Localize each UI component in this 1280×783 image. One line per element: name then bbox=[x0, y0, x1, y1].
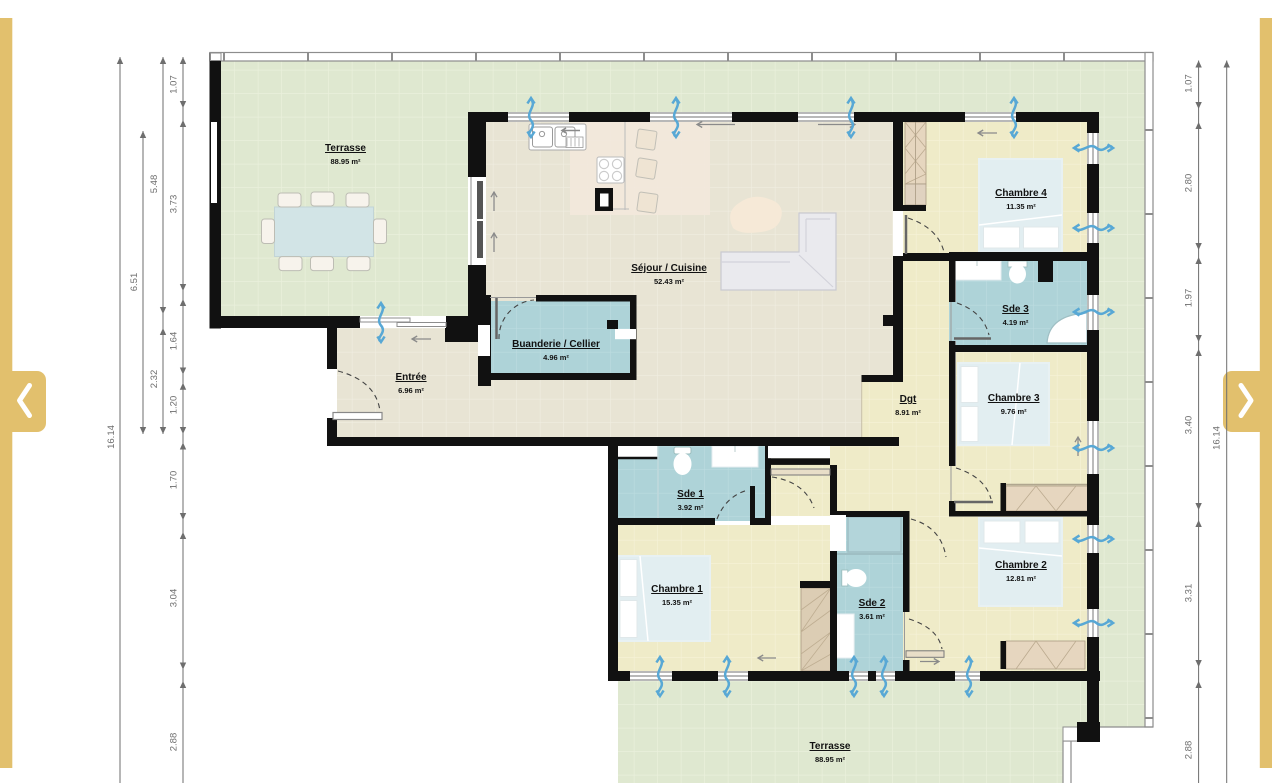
svg-text:6.96 m²: 6.96 m² bbox=[398, 386, 424, 395]
svg-text:Chambre 4: Chambre 4 bbox=[995, 188, 1047, 199]
svg-text:Sde 2: Sde 2 bbox=[859, 598, 886, 609]
svg-text:4.96 m²: 4.96 m² bbox=[543, 353, 569, 362]
svg-text:Chambre 3: Chambre 3 bbox=[988, 393, 1040, 404]
svg-text:16.14: 16.14 bbox=[1212, 426, 1223, 450]
svg-text:88.95 m²: 88.95 m² bbox=[330, 157, 361, 166]
svg-text:Terrasse: Terrasse bbox=[325, 143, 366, 154]
svg-text:Séjour / Cuisine: Séjour / Cuisine bbox=[631, 263, 707, 274]
svg-text:3.40: 3.40 bbox=[1184, 416, 1195, 435]
svg-text:1.07: 1.07 bbox=[1184, 74, 1195, 93]
svg-text:Chambre 2: Chambre 2 bbox=[995, 560, 1047, 571]
svg-text:15.35 m²: 15.35 m² bbox=[662, 598, 693, 607]
svg-text:2.88: 2.88 bbox=[169, 733, 180, 752]
svg-text:12.81 m²: 12.81 m² bbox=[1006, 574, 1037, 583]
svg-text:Dgt: Dgt bbox=[900, 394, 917, 405]
svg-text:2.88: 2.88 bbox=[1184, 741, 1195, 760]
svg-text:Chambre 1: Chambre 1 bbox=[651, 584, 703, 595]
svg-text:Sde 1: Sde 1 bbox=[677, 489, 704, 500]
svg-text:3.92 m²: 3.92 m² bbox=[678, 503, 704, 512]
svg-text:11.35 m²: 11.35 m² bbox=[1006, 202, 1036, 211]
svg-text:16.14: 16.14 bbox=[106, 425, 117, 449]
svg-text:1.97: 1.97 bbox=[1184, 289, 1195, 308]
svg-text:1.64: 1.64 bbox=[169, 332, 180, 351]
svg-text:3.73: 3.73 bbox=[169, 195, 180, 214]
svg-text:Buanderie / Cellier: Buanderie / Cellier bbox=[512, 339, 600, 350]
svg-text:4.19 m²: 4.19 m² bbox=[1003, 318, 1029, 327]
svg-text:3.61 m²: 3.61 m² bbox=[859, 612, 885, 621]
svg-text:Sde 3: Sde 3 bbox=[1002, 304, 1029, 315]
svg-text:88.95 m²: 88.95 m² bbox=[815, 755, 846, 764]
svg-text:2.80: 2.80 bbox=[1184, 174, 1195, 193]
svg-text:Entrée: Entrée bbox=[395, 372, 427, 383]
svg-text:3.04: 3.04 bbox=[169, 589, 180, 608]
svg-text:52.43 m²: 52.43 m² bbox=[654, 277, 685, 286]
svg-text:6.51: 6.51 bbox=[129, 273, 140, 292]
svg-text:1.07: 1.07 bbox=[169, 75, 180, 94]
svg-text:Terrasse: Terrasse bbox=[810, 741, 851, 752]
svg-text:8.91 m²: 8.91 m² bbox=[895, 408, 921, 417]
svg-text:9.76 m²: 9.76 m² bbox=[1001, 407, 1027, 416]
svg-text:3.31: 3.31 bbox=[1184, 584, 1195, 603]
svg-text:5.48: 5.48 bbox=[149, 175, 160, 194]
svg-text:2.32: 2.32 bbox=[149, 370, 160, 389]
svg-text:1.20: 1.20 bbox=[169, 396, 180, 415]
svg-text:1.70: 1.70 bbox=[169, 471, 180, 490]
